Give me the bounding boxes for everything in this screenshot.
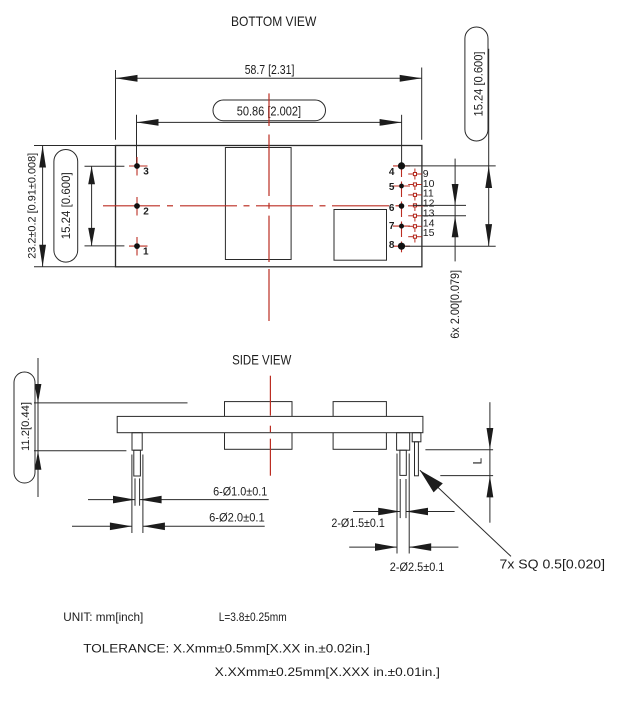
svg-text:X.XXmm±0.25mm[X.XXX in.±0.01i: X.XXmm±0.25mm[X.XXX in.±0.01in.] [215, 665, 440, 679]
svg-text:L=3.8±0.25mm: L=3.8±0.25mm [219, 610, 287, 624]
svg-text:6x 2.00[0.079]: 6x 2.00[0.079] [448, 270, 462, 339]
svg-text:58.7 [2.31]: 58.7 [2.31] [245, 62, 295, 77]
svg-text:6: 6 [389, 203, 395, 214]
svg-text:UNIT: mm[inch]: UNIT: mm[inch] [63, 610, 143, 624]
svg-text:7x SQ 0.5[0.020]: 7x SQ 0.5[0.020] [500, 556, 606, 571]
svg-text:3: 3 [143, 167, 149, 178]
svg-text:15.24 [0.600]: 15.24 [0.600] [59, 172, 73, 239]
svg-text:15: 15 [423, 227, 435, 239]
svg-text:BOTTOM VIEW: BOTTOM VIEW [231, 13, 317, 29]
svg-text:23.2±0.2 [0.91±0.008]: 23.2±0.2 [0.91±0.008] [27, 153, 39, 259]
svg-text:2: 2 [143, 206, 149, 217]
svg-text:6-Ø1.0±0.1: 6-Ø1.0±0.1 [213, 486, 267, 498]
svg-text:5: 5 [389, 182, 395, 193]
svg-text:2-Ø2.5±0.1: 2-Ø2.5±0.1 [390, 562, 445, 574]
svg-text:4: 4 [389, 167, 395, 178]
svg-text:SIDE VIEW: SIDE VIEW [232, 351, 292, 367]
svg-text:11.2[0.44]: 11.2[0.44] [20, 402, 32, 451]
svg-text:1: 1 [143, 246, 149, 257]
svg-text:L: L [470, 457, 484, 464]
svg-text:6-Ø2.0±0.1: 6-Ø2.0±0.1 [209, 513, 265, 525]
svg-text:TOLERANCE: X.Xmm±0.5mm[X.XX: TOLERANCE: X.Xmm±0.5mm[X.XX in.±0.02in.] [83, 642, 370, 656]
svg-text:2-Ø1.5±0.1: 2-Ø1.5±0.1 [331, 518, 384, 530]
svg-text:15.24 [0.600]: 15.24 [0.600] [471, 52, 485, 117]
svg-text:8: 8 [389, 240, 395, 251]
svg-text:7: 7 [389, 221, 395, 232]
